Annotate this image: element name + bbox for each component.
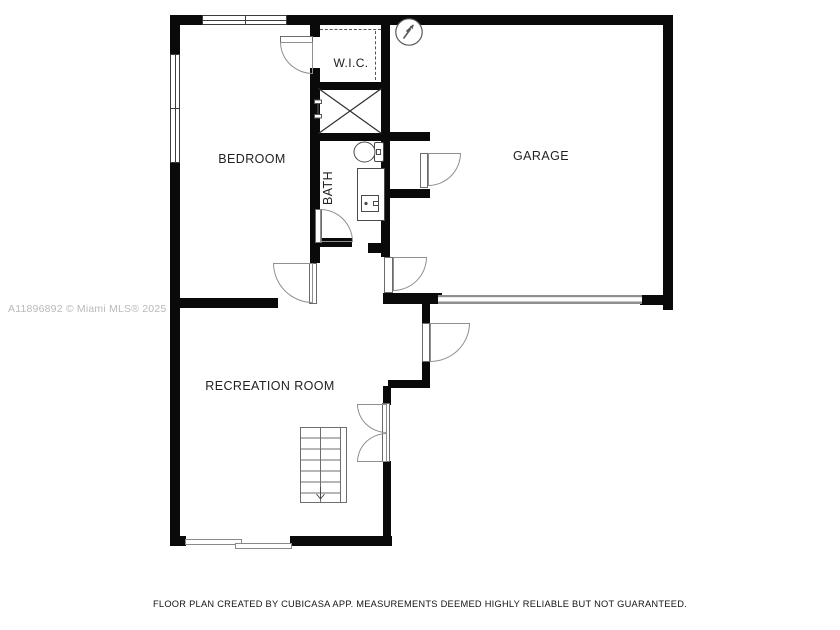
door-swing-arc-bedroom (273, 263, 313, 303)
mls-watermark: A11896892 © Miami MLS® 2025 (8, 303, 166, 315)
room-label-wic: W.I.C. (333, 56, 368, 70)
closet-shelf-dashed-line (375, 31, 376, 80)
wall-bottom-left-stub (170, 536, 186, 546)
footer-disclaimer: FLOOR PLAN CREATED BY CUBICASA APP. MEAS… (0, 599, 840, 609)
door-swing-arc-wic (280, 42, 313, 74)
room-label-garage: GARAGE (513, 149, 569, 163)
wall-garage-south-east (640, 295, 673, 305)
wall-rec-east-2 (422, 361, 430, 382)
toilet-icon (353, 140, 385, 164)
wall-rec-step (388, 380, 430, 388)
door-swing-arc-garage (393, 257, 427, 291)
stairs-down (300, 427, 347, 503)
door-swing-arc-double-lower (357, 433, 387, 462)
wall-garage-closet-top (390, 132, 430, 141)
wall-rec-east-4 (383, 461, 391, 538)
room-label-bedroom: BEDROOM (218, 152, 285, 166)
wall-bath-south-stub (368, 243, 387, 253)
wall-bottom-right (290, 536, 392, 546)
wall-garage-south-west (383, 293, 442, 304)
window-bedroom-top-1 (202, 15, 246, 25)
wall-garage-closet-bottom (390, 189, 430, 198)
wall-left-main (170, 163, 180, 546)
north-arrow-icon (394, 17, 424, 47)
sliding-door-panel-1 (185, 539, 242, 545)
wall-left-upper (170, 15, 180, 55)
door-leaf-garage-closet (420, 153, 428, 188)
wall-bedroom-south (170, 298, 278, 308)
door-swing-arc-rec-exterior (430, 323, 470, 362)
room-label-recreation-room: RECREATION ROOM (205, 379, 334, 393)
sliding-door-panel-2 (235, 543, 292, 549)
door-leaf-rec-exterior (422, 323, 430, 362)
sink-vanity-icon (357, 168, 385, 221)
garage-door (438, 295, 642, 304)
door-swing-arc-bath (320, 209, 353, 242)
window-bedroom-left-2 (170, 108, 180, 163)
closet-rod-dashed-line (320, 29, 381, 30)
floor-plan-canvas: BEDROOM W.I.C. BATH GARAGE RECREATION RO… (0, 0, 840, 630)
wall-garage-east (663, 15, 673, 310)
door-leaf-garage (384, 257, 393, 293)
wall-rec-east-1 (422, 303, 430, 323)
window-bedroom-top-2 (245, 15, 287, 25)
shower-valve-icon (311, 99, 324, 119)
room-label-bath: BATH (321, 171, 335, 205)
door-swing-arc-garage-closet (428, 153, 461, 186)
window-bedroom-left-1 (170, 54, 180, 109)
door-swing-arc-double-upper (357, 404, 387, 433)
shower-x (318, 88, 382, 134)
